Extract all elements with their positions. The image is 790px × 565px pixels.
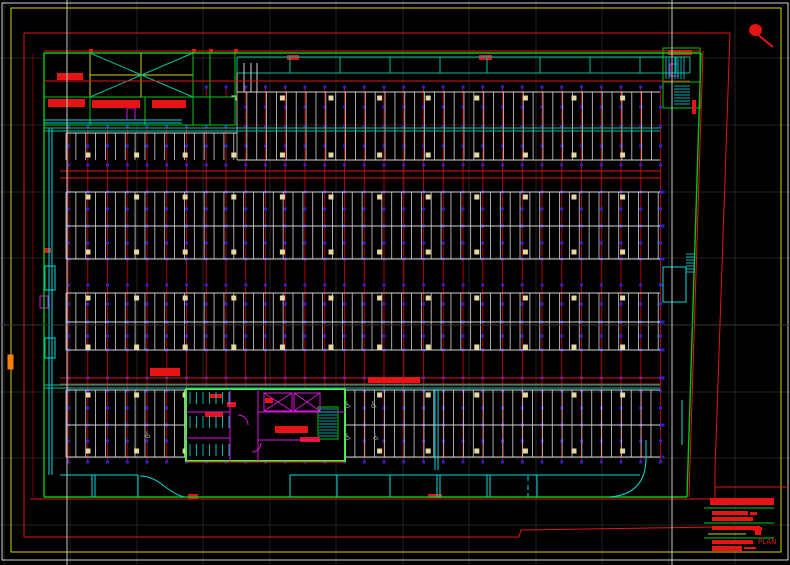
accessible-parking-icon: ♿ xyxy=(344,401,352,411)
sheet-label: PLAN xyxy=(758,538,776,546)
cad-canvas: PLAN♿♿♿♿♿ xyxy=(0,0,790,565)
accessible-parking-icon: ♿ xyxy=(144,431,152,441)
accessible-parking-icon: ♿ xyxy=(372,433,380,443)
accessible-parking-icon: ♿ xyxy=(344,433,352,443)
accessible-parking-icon: ♿ xyxy=(370,401,378,411)
cad-drawing-viewport[interactable]: PLAN♿♿♿♿♿ xyxy=(0,0,790,565)
